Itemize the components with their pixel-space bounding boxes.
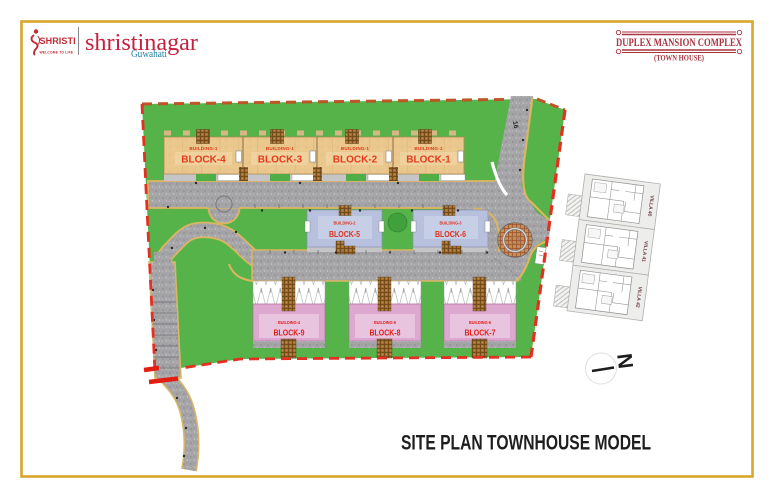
svg-text:BLOCK-8: BLOCK-8 bbox=[370, 328, 401, 338]
svg-text:BUILDING-6: BUILDING-6 bbox=[469, 320, 492, 325]
svg-text:BUILDING-3: BUILDING-3 bbox=[440, 221, 463, 226]
svg-text:SITE PLAN TOWNHOUSE MODEL: SITE PLAN TOWNHOUSE MODEL bbox=[401, 432, 651, 455]
svg-text:WELCOME TO LIFE: WELCOME TO LIFE bbox=[40, 51, 74, 55]
svg-text:BUILDING-1: BUILDING-1 bbox=[341, 146, 370, 151]
svg-text:Guwahati: Guwahati bbox=[131, 49, 167, 60]
svg-text:BLOCK-9: BLOCK-9 bbox=[274, 328, 305, 338]
svg-text:(TOWN HOUSE): (TOWN HOUSE) bbox=[654, 53, 704, 63]
svg-text:SHRISTI: SHRISTI bbox=[40, 36, 76, 46]
svg-text:BLOCK-3: BLOCK-3 bbox=[258, 155, 303, 166]
svg-text:BUILDING-5: BUILDING-5 bbox=[374, 320, 397, 325]
svg-text:BLOCK-6: BLOCK-6 bbox=[435, 229, 466, 239]
svg-text:BUILDING-4: BUILDING-4 bbox=[278, 320, 301, 325]
svg-text:BUILDING-2: BUILDING-2 bbox=[334, 221, 357, 226]
svg-text:BLOCK-1: BLOCK-1 bbox=[406, 155, 451, 166]
svg-text:BUILDING-1: BUILDING-1 bbox=[189, 146, 218, 151]
svg-text:BUILDING-1: BUILDING-1 bbox=[266, 146, 295, 151]
svg-text:N: N bbox=[612, 352, 637, 370]
svg-text:BLOCK-2: BLOCK-2 bbox=[333, 155, 378, 166]
svg-text:BLOCK-4: BLOCK-4 bbox=[181, 155, 226, 166]
svg-text:BLOCK-7: BLOCK-7 bbox=[465, 328, 496, 338]
svg-text:BUILDING-1: BUILDING-1 bbox=[414, 146, 443, 151]
svg-text:DUPLEX MANSION COMPLEX: DUPLEX MANSION COMPLEX bbox=[616, 37, 743, 49]
svg-text:BLOCK-5: BLOCK-5 bbox=[329, 229, 360, 239]
